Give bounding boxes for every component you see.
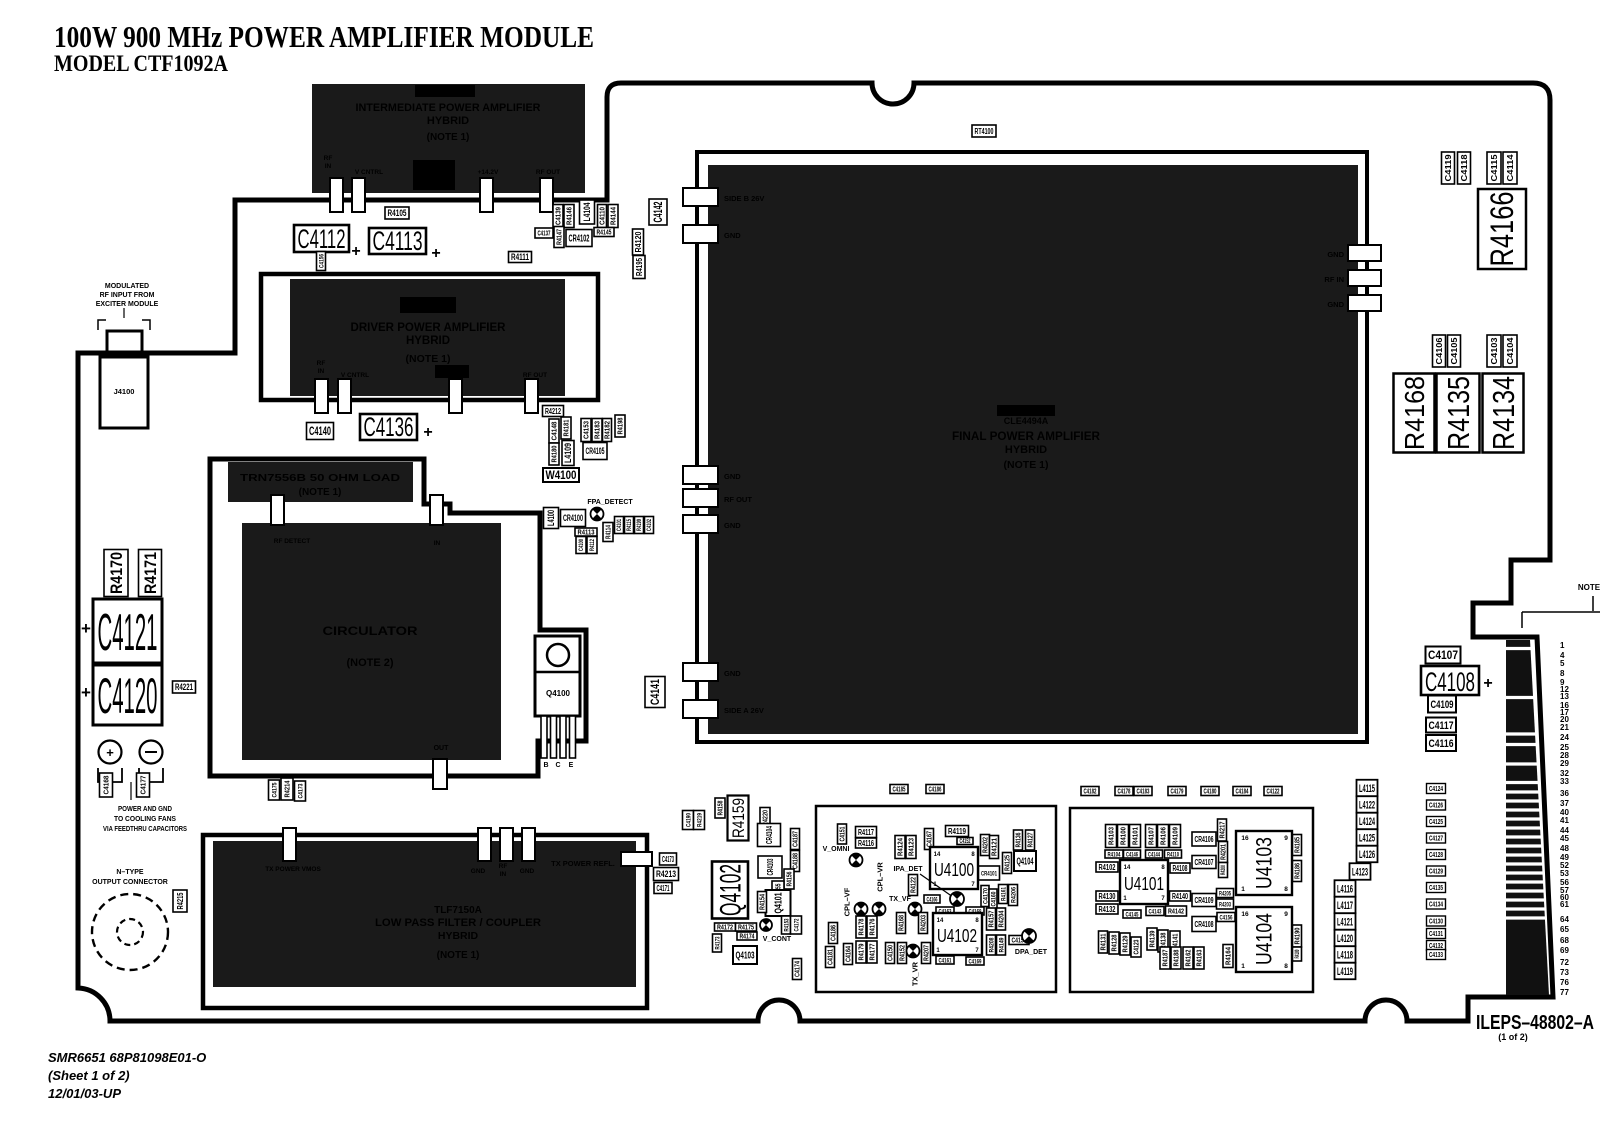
svg-text:R4182: R4182 — [604, 421, 611, 439]
svg-text:C4100: C4100 — [579, 539, 585, 551]
svg-text:C4160: C4160 — [990, 891, 997, 906]
svg-text:R4110: R4110 — [1167, 851, 1179, 858]
svg-text:76: 76 — [1560, 978, 1569, 987]
svg-text:R4114: R4114 — [605, 525, 612, 539]
svg-text:C4141: C4141 — [648, 679, 662, 705]
svg-text:R4135: R4135 — [1441, 376, 1476, 450]
svg-text:24: 24 — [1560, 733, 1569, 742]
svg-text:DPA_DET: DPA_DET — [1015, 949, 1048, 956]
svg-text:TX POWER REFL.: TX POWER REFL. — [551, 859, 615, 868]
svg-text:L4117: L4117 — [1337, 900, 1353, 912]
svg-text:RF INPUT FROM: RF INPUT FROM — [100, 292, 155, 299]
svg-text:C4174: C4174 — [794, 961, 801, 977]
svg-text:R4177: R4177 — [869, 943, 876, 960]
svg-text:RF OUT: RF OUT — [523, 372, 547, 379]
svg-text:(NOTE 2): (NOTE 2) — [346, 657, 393, 669]
svg-text:R4170: R4170 — [107, 552, 126, 594]
svg-text:73: 73 — [1560, 968, 1569, 977]
svg-text:VIA FEEDTHRU CAPACITORS: VIA FEEDTHRU CAPACITORS — [103, 826, 187, 833]
svg-text:R4221: R4221 — [175, 682, 193, 692]
svg-text:45: 45 — [1560, 834, 1569, 843]
svg-text:N–TYPE: N–TYPE — [116, 869, 144, 876]
svg-text:65: 65 — [1560, 925, 1569, 934]
svg-text:TX_VR: TX_VR — [911, 961, 920, 986]
svg-text:C4124: C4124 — [1429, 786, 1443, 793]
svg-text:R4198: R4198 — [617, 417, 624, 434]
svg-text:C4173: C4173 — [297, 783, 304, 798]
svg-text:C4129: C4129 — [1429, 868, 1443, 875]
svg-text:R4130: R4130 — [1099, 892, 1116, 901]
svg-text:37: 37 — [1560, 799, 1569, 808]
svg-text:+14.2V: +14.2V — [478, 169, 499, 176]
svg-text:R4203: R4203 — [920, 915, 927, 931]
svg-text:C4128: C4128 — [1429, 852, 1443, 859]
svg-text:DRIVER POWER AMPLIFIER: DRIVER POWER AMPLIFIER — [351, 322, 507, 334]
svg-text:R4115: R4115 — [627, 519, 633, 531]
svg-text:GND: GND — [520, 868, 535, 875]
svg-text:R4162: R4162 — [1185, 949, 1192, 966]
svg-text:R4168: R4168 — [898, 915, 905, 931]
svg-text:R4149: R4149 — [998, 937, 1005, 952]
svg-text:R4186: R4186 — [1294, 863, 1301, 879]
svg-text:C4118: C4118 — [1460, 154, 1469, 182]
svg-text:R4215: R4215 — [176, 892, 185, 909]
svg-text:Q4102: Q4102 — [715, 864, 748, 916]
svg-text:V CNTRL: V CNTRL — [341, 372, 369, 379]
svg-text:Q4100: Q4100 — [546, 689, 571, 698]
svg-text:C4186: C4186 — [929, 786, 942, 793]
svg-text:IN: IN — [318, 368, 325, 375]
svg-text:21: 21 — [1560, 723, 1569, 732]
svg-text:C4113: C4113 — [373, 226, 423, 256]
svg-text:C4101: C4101 — [617, 519, 623, 531]
svg-text:C4183: C4183 — [1137, 788, 1150, 795]
svg-text:16: 16 — [1241, 835, 1249, 842]
svg-text:48: 48 — [1560, 844, 1569, 853]
svg-text:R4113: R4113 — [578, 529, 595, 536]
svg-text:B: B — [543, 762, 548, 769]
svg-text:29: 29 — [1560, 759, 1569, 768]
svg-text:Q4101: Q4101 — [774, 892, 785, 913]
svg-text:R4156: R4156 — [786, 871, 793, 886]
svg-text:+: + — [106, 745, 114, 760]
svg-text:R4200: R4200 — [1221, 865, 1227, 875]
svg-text:14: 14 — [934, 852, 941, 858]
svg-text:CR4105: CR4105 — [586, 446, 605, 456]
svg-text:C4122: C4122 — [1267, 788, 1280, 795]
svg-text:1: 1 — [1560, 641, 1565, 650]
svg-text:L4115: L4115 — [1359, 783, 1375, 795]
svg-text:9: 9 — [1284, 911, 1288, 918]
svg-text:(NOTE 1): (NOTE 1) — [437, 950, 480, 961]
svg-text:C: C — [555, 762, 560, 769]
svg-text:MODEL CTF1092A: MODEL CTF1092A — [54, 51, 228, 76]
svg-text:36: 36 — [1560, 789, 1569, 798]
svg-text:SIDE B 26V: SIDE B 26V — [724, 194, 764, 203]
svg-text:R4112: R4112 — [590, 539, 596, 551]
svg-text:72: 72 — [1560, 958, 1569, 967]
svg-text:33: 33 — [1560, 777, 1569, 786]
svg-text:16: 16 — [1241, 911, 1249, 918]
svg-text:R4175: R4175 — [738, 924, 754, 931]
svg-text:GND: GND — [471, 868, 486, 875]
svg-text:R4161: R4161 — [1000, 887, 1007, 901]
svg-text:R4111: R4111 — [511, 252, 529, 262]
svg-text:L4121: L4121 — [1337, 916, 1353, 928]
svg-text:TX POWER VMOS: TX POWER VMOS — [265, 866, 321, 873]
svg-text:R4183: R4183 — [594, 421, 601, 439]
svg-text:Q4103: Q4103 — [736, 951, 755, 962]
svg-text:C4150: C4150 — [887, 945, 894, 961]
svg-text:77: 77 — [1560, 988, 1569, 997]
svg-text:R4174: R4174 — [740, 933, 755, 940]
svg-text:L4119: L4119 — [1337, 966, 1353, 978]
svg-text:L4125: L4125 — [1359, 832, 1375, 844]
svg-text:R4168: R4168 — [1399, 376, 1430, 450]
svg-text:MODULATED: MODULATED — [105, 283, 149, 290]
svg-text:C4178: C4178 — [1118, 788, 1131, 795]
svg-text:R4185: R4185 — [1294, 837, 1301, 853]
svg-text:C4102: C4102 — [647, 519, 653, 531]
svg-text:U4101: U4101 — [1124, 874, 1164, 894]
svg-text:U4103: U4103 — [1252, 837, 1277, 889]
svg-text:R4104: R4104 — [1108, 851, 1121, 858]
svg-text:C4139: C4139 — [555, 207, 562, 225]
svg-text:R4123: R4123 — [908, 838, 915, 856]
svg-text:R4178: R4178 — [858, 918, 865, 935]
svg-text:R4152: R4152 — [899, 945, 906, 961]
svg-text:C4184: C4184 — [1236, 788, 1249, 795]
svg-text:8: 8 — [1560, 669, 1565, 678]
svg-text:CR4109: CR4109 — [1195, 896, 1214, 905]
svg-text:TRN7556B 50 OHM LOAD: TRN7556B 50 OHM LOAD — [240, 472, 401, 484]
svg-text:+: + — [1483, 675, 1492, 692]
svg-text:W4100: W4100 — [546, 468, 577, 482]
svg-text:R4125: R4125 — [1004, 855, 1011, 871]
svg-text:GND: GND — [724, 521, 741, 530]
svg-text:12/01/03-UP: 12/01/03-UP — [48, 1086, 121, 1101]
svg-text:C4125: C4125 — [1429, 819, 1443, 826]
svg-text:C4175: C4175 — [271, 782, 278, 797]
svg-text:L4104: L4104 — [582, 203, 592, 222]
svg-text:R4144: R4144 — [610, 207, 617, 225]
svg-text:C4127: C4127 — [1429, 835, 1443, 842]
svg-text:C4123: C4123 — [1133, 939, 1140, 954]
svg-text:SMR6651 68P81098E01-O: SMR6651 68P81098E01-O — [48, 1050, 206, 1065]
svg-text:C4152: C4152 — [960, 839, 971, 845]
svg-text:RF: RF — [317, 360, 326, 367]
svg-text:FINAL POWER AMPLIFIER: FINAL POWER AMPLIFIER — [952, 431, 1101, 443]
svg-text:IN: IN — [434, 540, 441, 547]
svg-text:C4177: C4177 — [140, 775, 147, 794]
svg-text:R4127: R4127 — [1027, 832, 1034, 847]
svg-text:C4166: C4166 — [927, 896, 938, 903]
svg-text:C4182: C4182 — [1084, 788, 1097, 795]
svg-text:R4181: R4181 — [563, 419, 570, 436]
svg-text:RF OUT: RF OUT — [536, 169, 560, 176]
svg-text:C4173: C4173 — [662, 855, 674, 864]
svg-text:C4116: C4116 — [1429, 738, 1454, 750]
svg-text:C4179: C4179 — [1171, 788, 1184, 795]
svg-text:C4119: C4119 — [1444, 154, 1453, 182]
svg-text:RF IN: RF IN — [1324, 275, 1344, 284]
svg-text:R4202: R4202 — [982, 837, 989, 853]
svg-text:C4106: C4106 — [1435, 337, 1444, 365]
svg-text:C4107: C4107 — [1428, 648, 1458, 662]
svg-text:14: 14 — [1124, 865, 1131, 871]
svg-text:C4103: C4103 — [1490, 337, 1499, 365]
svg-text:CR4103: CR4103 — [766, 858, 775, 875]
svg-text:8: 8 — [1284, 886, 1288, 893]
svg-text:C4130: C4130 — [1429, 918, 1443, 925]
svg-text:C4112: C4112 — [298, 224, 346, 254]
svg-text:C4156: C4156 — [318, 254, 325, 268]
svg-text:NOTE: NOTE — [1578, 583, 1600, 592]
svg-text:R4163: R4163 — [1196, 949, 1203, 966]
svg-text:(NOTE 1): (NOTE 1) — [406, 353, 451, 365]
svg-text:CR4104: CR4104 — [765, 826, 774, 844]
svg-text:HYBRID: HYBRID — [406, 335, 450, 347]
svg-text:V_OMNI: V_OMNI — [823, 846, 850, 853]
svg-text:R4201: R4201 — [1220, 844, 1227, 860]
svg-text:L4120: L4120 — [1337, 933, 1353, 945]
svg-text:C4168: C4168 — [103, 775, 110, 794]
svg-text:C4187: C4187 — [792, 831, 799, 847]
svg-text:IPA_DET: IPA_DET — [893, 866, 923, 873]
svg-text:CR4102: CR4102 — [569, 234, 590, 245]
svg-text:R4147: R4147 — [556, 229, 563, 245]
svg-text:GND: GND — [1327, 300, 1344, 309]
svg-text:R4159: R4159 — [729, 798, 748, 838]
svg-text:R4166: R4166 — [1484, 192, 1520, 267]
svg-text:R4142: R4142 — [1168, 907, 1184, 916]
svg-text:C4181: C4181 — [827, 949, 834, 965]
svg-text:R4176: R4176 — [869, 918, 876, 935]
svg-text:FPA_DETECT: FPA_DETECT — [587, 499, 633, 506]
svg-text:R4190: R4190 — [1294, 927, 1301, 944]
svg-text:C4153: C4153 — [583, 421, 590, 439]
svg-text:C4135: C4135 — [1429, 885, 1443, 892]
svg-text:R4207: R4207 — [923, 945, 930, 961]
svg-text:R4129: R4129 — [1122, 935, 1129, 952]
svg-text:R4203: R4203 — [1219, 901, 1231, 908]
svg-text:R4101: R4101 — [1131, 827, 1140, 845]
svg-text:CR4101: CR4101 — [981, 870, 997, 877]
svg-text:R4109: R4109 — [1171, 827, 1180, 845]
svg-text:L4124: L4124 — [1359, 816, 1375, 828]
svg-text:C4105: C4105 — [1450, 337, 1459, 365]
svg-text:R4102: R4102 — [1099, 863, 1116, 872]
svg-text:C4145: C4145 — [1126, 911, 1139, 918]
svg-text:14: 14 — [937, 918, 944, 924]
svg-text:8: 8 — [1284, 963, 1288, 970]
svg-text:CR4108: CR4108 — [1195, 920, 1214, 929]
svg-text:IN: IN — [325, 163, 332, 170]
svg-text:R4171: R4171 — [141, 552, 160, 594]
svg-text:CIRCULATOR: CIRCULATOR — [323, 626, 419, 638]
svg-text:+: + — [431, 245, 440, 262]
svg-text:TX_VF: TX_VF — [889, 896, 912, 903]
svg-text:C4156: C4156 — [1220, 914, 1233, 921]
svg-text:1: 1 — [1241, 886, 1245, 893]
svg-text:HYBRID: HYBRID — [427, 115, 469, 127]
svg-text:OUTPUT CONNECTOR: OUTPUT CONNECTOR — [92, 879, 168, 886]
svg-text:RF OUT: RF OUT — [724, 495, 752, 504]
svg-text:69: 69 — [1560, 946, 1569, 955]
svg-text:V CNTRL: V CNTRL — [355, 169, 383, 176]
svg-text:CR4106: CR4106 — [1195, 835, 1214, 844]
svg-text:53: 53 — [1560, 869, 1569, 878]
svg-text:Q4104: Q4104 — [1017, 857, 1034, 868]
svg-text:C4144: C4144 — [1148, 851, 1160, 858]
svg-text:R4106: R4106 — [1159, 827, 1168, 845]
svg-text:L4116: L4116 — [1337, 883, 1353, 895]
svg-text:U4102: U4102 — [937, 926, 977, 946]
svg-text:CPL–VR: CPL–VR — [876, 862, 885, 892]
svg-text:13: 13 — [1560, 692, 1569, 701]
svg-text:C4140: C4140 — [309, 424, 331, 438]
svg-text:R4195: R4195 — [635, 258, 644, 276]
svg-text:C4185: C4185 — [893, 786, 906, 793]
svg-text:R4139: R4139 — [1149, 930, 1156, 947]
svg-text:ILEPS–48802–A: ILEPS–48802–A — [1476, 1012, 1594, 1034]
svg-text:R4213: R4213 — [656, 869, 676, 879]
svg-text:R4122: R4122 — [910, 877, 917, 893]
svg-text:R4117: R4117 — [858, 828, 874, 837]
svg-text:TLF7150A: TLF7150A — [434, 905, 482, 916]
svg-text:C4120: C4120 — [98, 668, 158, 724]
svg-text:OUT: OUT — [434, 745, 450, 752]
svg-text:INTERMEDIATE POWER AMPLIFIER: INTERMEDIATE POWER AMPLIFIER — [356, 102, 541, 114]
svg-text:R4128: R4128 — [1111, 934, 1118, 951]
svg-text:J4100: J4100 — [114, 387, 135, 396]
svg-text:C4143: C4143 — [1149, 908, 1162, 915]
svg-text:C4148: C4148 — [551, 421, 558, 440]
svg-text:C4110: C4110 — [599, 207, 606, 225]
svg-text:R4212: R4212 — [545, 407, 561, 416]
svg-text:C4117: C4117 — [1429, 720, 1454, 732]
svg-text:C4136: C4136 — [364, 412, 414, 442]
svg-text:C4172: C4172 — [793, 918, 800, 931]
svg-text:L4122: L4122 — [1359, 799, 1375, 811]
svg-text:GND: GND — [724, 231, 741, 240]
svg-text:C4126: C4126 — [1429, 802, 1443, 809]
svg-text:CLE4494A: CLE4494A — [1004, 416, 1049, 426]
svg-text:R4132: R4132 — [1099, 905, 1116, 914]
svg-text:L4123: L4123 — [1352, 866, 1368, 878]
svg-text:64: 64 — [1560, 915, 1569, 924]
svg-text:C4121: C4121 — [98, 604, 158, 662]
svg-text:R4124: R4124 — [897, 838, 904, 856]
svg-text:R4217: R4217 — [1219, 821, 1226, 838]
svg-text:C4146: C4146 — [1126, 851, 1138, 858]
svg-text:HYBRID: HYBRID — [438, 930, 479, 942]
svg-text:L4126: L4126 — [1359, 849, 1375, 861]
svg-text:EXCITER MODULE: EXCITER MODULE — [96, 301, 159, 308]
svg-text:C4133: C4133 — [1429, 952, 1443, 959]
svg-text:(NOTE 1): (NOTE 1) — [299, 487, 342, 498]
svg-text:LOW PASS FILTER / COUPLER: LOW PASS FILTER / COUPLER — [375, 917, 541, 929]
svg-text:GND: GND — [1327, 250, 1344, 259]
svg-text:R4179: R4179 — [858, 943, 865, 960]
svg-text:U4104: U4104 — [1252, 913, 1277, 965]
svg-text:C4134: C4134 — [1429, 901, 1443, 908]
svg-text:SIDE A 26V: SIDE A 26V — [724, 706, 764, 715]
svg-text:R4199: R4199 — [637, 519, 643, 531]
svg-text:(NOTE 1): (NOTE 1) — [1004, 459, 1049, 471]
svg-text:C4109: C4109 — [1431, 699, 1454, 711]
svg-text:R4100: R4100 — [1119, 827, 1128, 845]
svg-text:HYBRID: HYBRID — [1005, 444, 1047, 456]
svg-text:C4131: C4131 — [1429, 931, 1443, 938]
svg-text:68: 68 — [1560, 936, 1569, 945]
svg-text:R4154: R4154 — [759, 894, 766, 910]
svg-text:U4100: U4100 — [934, 860, 974, 880]
svg-text:+: + — [81, 683, 91, 702]
svg-text:C4108: C4108 — [1425, 667, 1475, 697]
svg-text:E: E — [569, 762, 574, 769]
svg-text:L4109: L4109 — [563, 443, 573, 463]
svg-text:100W 900 MHz POWER AMPLIFIER M: 100W 900 MHz POWER AMPLIFIER MODULE — [54, 19, 594, 54]
svg-text:R4188: R4188 — [1173, 949, 1180, 966]
svg-text:+: + — [351, 243, 360, 260]
svg-text:GND: GND — [724, 669, 741, 678]
svg-text:R4187: R4187 — [1162, 949, 1169, 966]
svg-text:(Sheet 1 of 2): (Sheet 1 of 2) — [48, 1068, 130, 1083]
svg-text:C4114: C4114 — [1506, 154, 1515, 182]
svg-text:R4146: R4146 — [566, 207, 573, 225]
svg-text:9: 9 — [1284, 835, 1288, 842]
svg-text:(1 of 2): (1 of 2) — [1498, 1032, 1528, 1042]
svg-text:C4115: C4115 — [1490, 154, 1499, 182]
svg-text:C4186: C4186 — [830, 925, 837, 941]
svg-text:R4219: R4219 — [696, 813, 703, 827]
svg-text:R4103: R4103 — [1107, 827, 1116, 845]
svg-text:R4172: R4172 — [717, 924, 733, 931]
svg-text:+: + — [423, 424, 432, 441]
svg-text:R4157: R4157 — [988, 910, 995, 927]
svg-text:5: 5 — [1560, 659, 1565, 668]
svg-text:41: 41 — [1560, 816, 1569, 825]
svg-text:R4153: R4153 — [783, 918, 790, 931]
svg-text:R4119: R4119 — [948, 827, 966, 836]
svg-text:R4180: R4180 — [551, 445, 558, 462]
svg-text:R4120: R4120 — [634, 231, 643, 252]
svg-text:C4137: C4137 — [538, 230, 551, 237]
svg-text:L4118: L4118 — [1337, 949, 1353, 961]
svg-text:CR4107: CR4107 — [1195, 858, 1214, 867]
svg-text:C4188: C4188 — [792, 853, 799, 869]
svg-text:1: 1 — [1241, 963, 1245, 970]
svg-text:R4136: R4136 — [1015, 832, 1022, 847]
svg-text:R4208: R4208 — [988, 937, 995, 952]
svg-text:C4164: C4164 — [845, 946, 852, 962]
svg-text:L4100: L4100 — [546, 510, 556, 526]
svg-text:R4108: R4108 — [1173, 864, 1188, 873]
svg-text:R4206: R4206 — [1010, 887, 1017, 903]
svg-text:C4171: C4171 — [657, 884, 670, 893]
svg-text:RF: RF — [324, 155, 333, 162]
svg-text:R4121: R4121 — [991, 838, 998, 856]
svg-text:R4145: R4145 — [597, 229, 612, 236]
svg-text:POWER AND GND: POWER AND GND — [118, 806, 172, 813]
svg-text:RF: RF — [499, 863, 508, 870]
svg-text:R4131: R4131 — [1100, 933, 1107, 950]
svg-text:R4164: R4164 — [1225, 947, 1232, 965]
svg-text:R4158: R4158 — [717, 800, 724, 815]
svg-text:R4173: R4173 — [714, 936, 721, 949]
svg-text:CR4100: CR4100 — [563, 513, 583, 523]
